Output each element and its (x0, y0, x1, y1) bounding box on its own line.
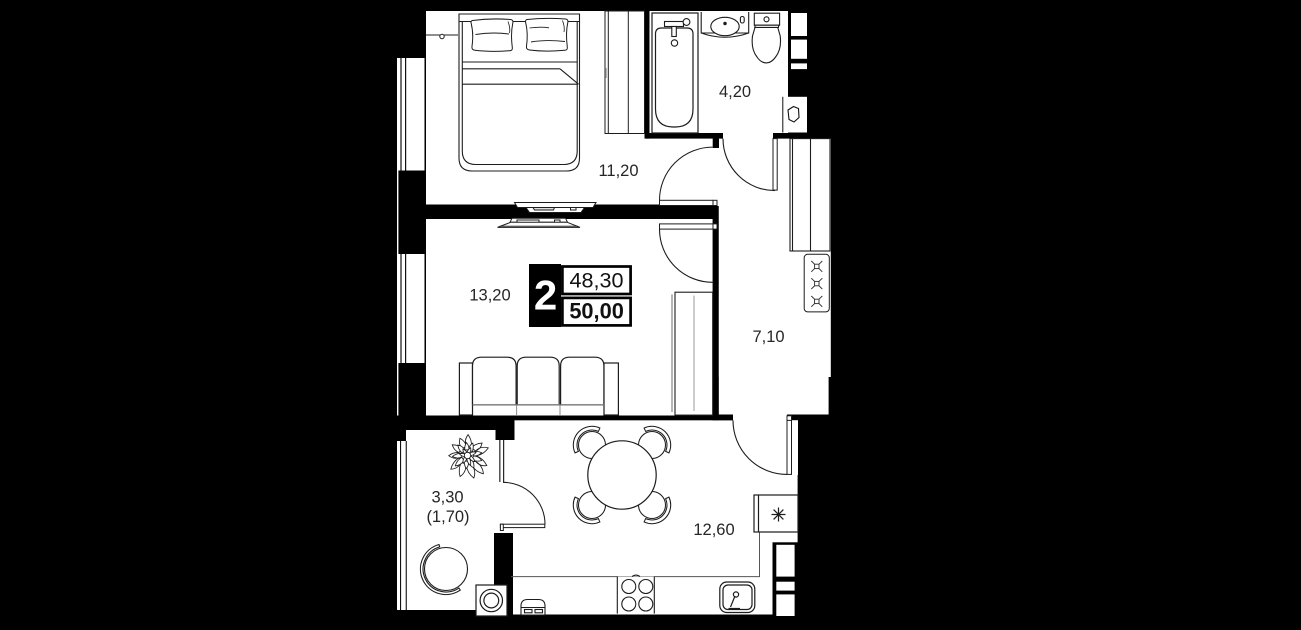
svg-text:11,20: 11,20 (598, 162, 638, 180)
svg-text:3,30: 3,30 (431, 489, 463, 507)
svg-text:7,10: 7,10 (752, 328, 784, 346)
svg-text:(1,70): (1,70) (426, 508, 469, 526)
svg-text:2: 2 (534, 272, 557, 319)
svg-text:48,30: 48,30 (569, 267, 623, 292)
svg-text:12,60: 12,60 (693, 521, 734, 539)
svg-text:4,20: 4,20 (719, 83, 751, 101)
svg-text:50,00: 50,00 (569, 299, 624, 324)
svg-text:13,20: 13,20 (469, 287, 510, 305)
